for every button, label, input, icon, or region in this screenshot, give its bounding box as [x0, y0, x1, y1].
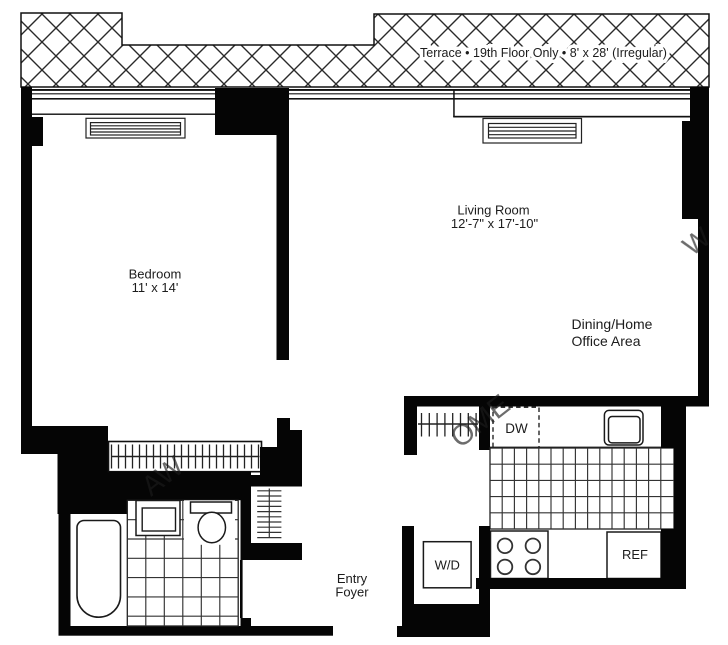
- svg-text:12'-7" x 17'-10": 12'-7" x 17'-10": [451, 216, 539, 231]
- svg-text:Foyer: Foyer: [335, 585, 369, 600]
- svg-text:Terrace • 19th Floor Only • 8': Terrace • 19th Floor Only • 8' x 28' (Ir…: [420, 46, 667, 60]
- svg-text:DW: DW: [505, 421, 528, 436]
- svg-text:Dining/Home: Dining/Home: [572, 316, 653, 332]
- svg-text:W/D: W/D: [435, 558, 460, 573]
- svg-text:Office Area: Office Area: [572, 333, 641, 349]
- svg-text:11' x 14': 11' x 14': [132, 280, 179, 295]
- svg-text:REF: REF: [622, 547, 648, 562]
